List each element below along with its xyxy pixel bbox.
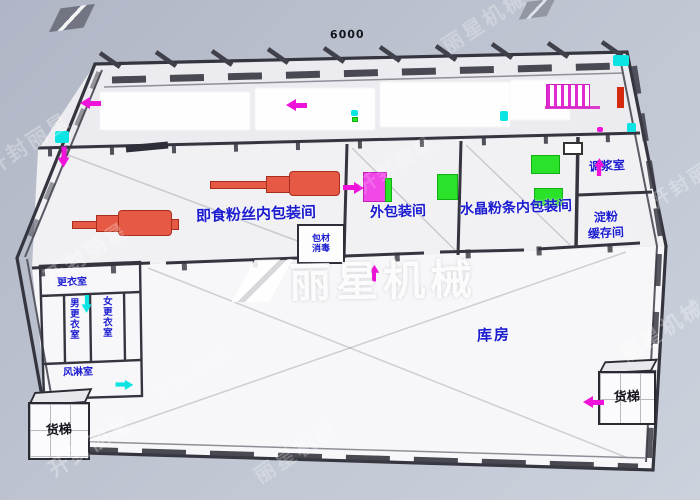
production-line-silhouette bbox=[100, 92, 250, 130]
center-watermark: 丽星机械 bbox=[242, 246, 477, 311]
flow-arrow-right-2 bbox=[115, 379, 134, 390]
room-label-warehouse: 库房 bbox=[477, 326, 512, 344]
flow-arrow-up-2 bbox=[593, 158, 604, 177]
room-label-outer-packing: 外包装间 bbox=[370, 203, 427, 221]
magenta-marker-1 bbox=[597, 127, 603, 132]
dimension-label: 6000 bbox=[330, 29, 365, 42]
room-label-men-corridor: 男更衣室 bbox=[67, 298, 78, 340]
flow-arrow-down-2 bbox=[81, 294, 92, 313]
room-label-women-corridor: 女更衣室 bbox=[100, 296, 111, 338]
small-equipment-box bbox=[563, 142, 583, 155]
green-marker-small bbox=[352, 117, 358, 122]
cyan-marker-3 bbox=[627, 123, 636, 132]
room-label-dressing: 更衣室 bbox=[57, 276, 87, 289]
production-line-silhouette bbox=[255, 88, 375, 130]
flow-arrow-left-3 bbox=[583, 396, 605, 409]
dryer-outline-line bbox=[545, 106, 600, 109]
freight-elevator-left-label: 货梯 bbox=[45, 423, 72, 440]
dryer-conveyor-grid bbox=[546, 84, 590, 108]
room-label-starch-2: 缓存间 bbox=[588, 226, 625, 242]
green-machine-2 bbox=[531, 155, 560, 174]
green-machine-edge bbox=[385, 178, 392, 202]
flow-arrow-right-1 bbox=[342, 181, 364, 194]
room-label-starch-1: 淀粉 bbox=[594, 210, 619, 225]
cyan-marker-1 bbox=[55, 131, 69, 143]
cyan-marker-2 bbox=[613, 55, 629, 66]
center-watermark-text: 丽星机械 bbox=[288, 246, 477, 310]
flow-arrow-left-2 bbox=[286, 99, 308, 112]
factory-floorplan-screenshot: 货梯 货梯 包材 消毒 即食粉丝内包装间 外包装间 水晶粉条内包装间 调浆室 淀… bbox=[0, 0, 700, 500]
red-equipment-bar bbox=[617, 87, 624, 108]
flow-arrow-left-1 bbox=[80, 97, 102, 110]
flow-arrow-down-1 bbox=[58, 146, 71, 168]
green-machine-1 bbox=[437, 174, 458, 200]
production-line-silhouette bbox=[380, 82, 510, 127]
packing-material-label-1: 包材 bbox=[312, 233, 330, 244]
magenta-machine bbox=[363, 172, 387, 202]
cyan-marker-4 bbox=[500, 111, 508, 121]
freight-elevator-right-label: 货梯 bbox=[614, 390, 641, 406]
cyan-marker-5 bbox=[351, 110, 358, 116]
room-label-air-shower: 风淋室 bbox=[63, 366, 93, 379]
